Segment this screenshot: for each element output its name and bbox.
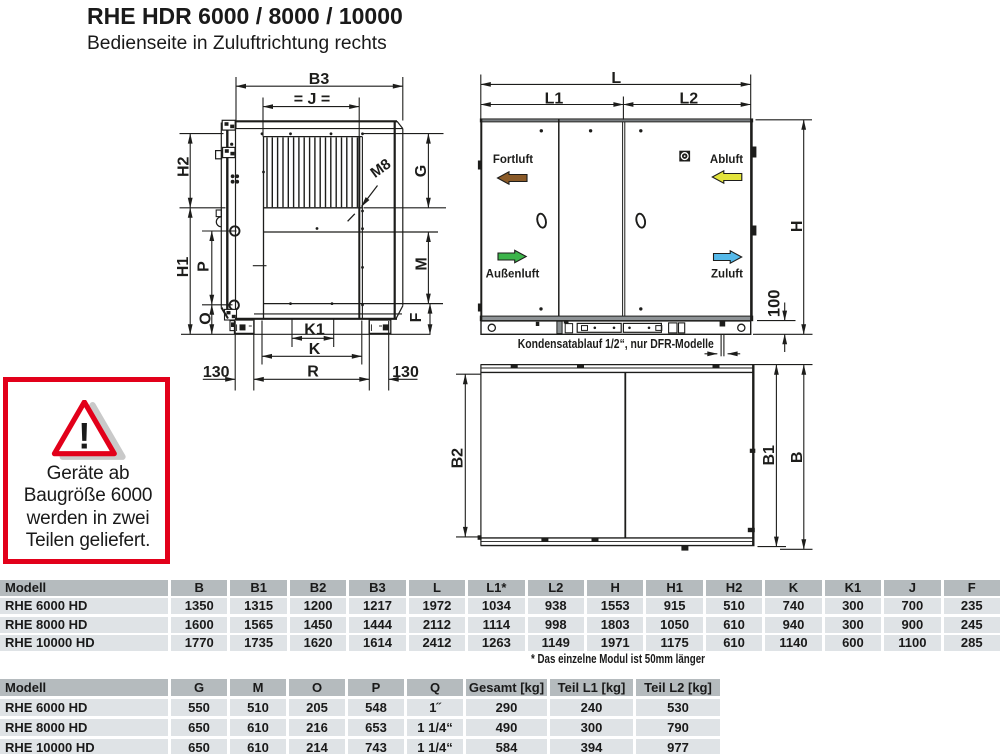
svg-text:K: K: [309, 341, 321, 358]
svg-text:L2: L2: [679, 90, 698, 107]
svg-text:K1: K1: [304, 321, 325, 338]
svg-text:Außenluft: Außenluft: [486, 268, 540, 280]
svg-text:!: !: [78, 415, 90, 457]
svg-text:H: H: [789, 221, 806, 233]
svg-text:B2: B2: [450, 448, 467, 469]
svg-text:100: 100: [766, 290, 784, 318]
svg-text:L1: L1: [545, 90, 564, 107]
svg-text:O: O: [197, 312, 214, 324]
svg-text:F: F: [408, 312, 425, 322]
svg-text:Fortluft: Fortluft: [493, 154, 533, 166]
svg-text:M8: M8: [367, 156, 394, 182]
svg-text:L: L: [611, 70, 621, 87]
svg-text:B1: B1: [761, 445, 778, 466]
svg-text:P: P: [195, 261, 212, 272]
svg-text:130: 130: [203, 364, 230, 381]
svg-text:Abluft: Abluft: [710, 154, 743, 166]
svg-text:130: 130: [392, 364, 419, 381]
svg-text:H1: H1: [175, 257, 192, 278]
svg-text:Zuluft: Zuluft: [711, 268, 743, 280]
svg-text:= J =: = J =: [294, 91, 330, 108]
svg-text:M: M: [413, 257, 430, 270]
svg-text:B3: B3: [309, 71, 330, 88]
svg-text:R: R: [307, 364, 319, 381]
svg-text:G: G: [413, 165, 430, 177]
svg-text:B: B: [789, 452, 806, 464]
svg-text:Kondensatablauf 1/2“, nur DFR-: Kondensatablauf 1/2“, nur DFR-Modelle: [518, 337, 714, 351]
svg-text:H2: H2: [176, 156, 193, 177]
